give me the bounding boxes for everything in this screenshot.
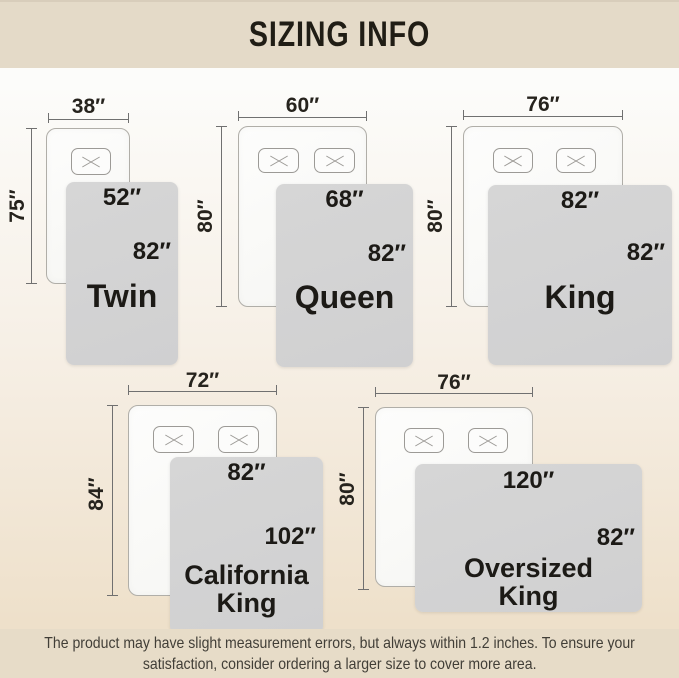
width-dimension-line — [48, 119, 129, 120]
height-dimension-line — [451, 126, 452, 307]
blanket-width-label: 68″ — [276, 186, 413, 214]
width-dimension-line — [128, 391, 277, 392]
pillow-icon — [493, 148, 533, 173]
blanket-height-label: 82″ — [133, 238, 171, 266]
mattress-width-label: 72″ — [128, 369, 277, 393]
blanket-height-label: 82″ — [627, 239, 665, 267]
width-dimension-line — [375, 393, 533, 394]
width-dimension-line — [238, 117, 367, 118]
blanket: 68″ 82″ Queen — [276, 184, 413, 367]
pillow-icon — [258, 148, 299, 173]
blanket-width-label: 52″ — [66, 184, 178, 212]
footer-text-line1: The product may have slight measurement … — [44, 634, 635, 654]
pillow-icon — [71, 148, 111, 175]
mattress-height-label: 80″ — [424, 199, 448, 232]
height-dimension-line — [31, 128, 32, 284]
mattress-height-label: 80″ — [194, 199, 218, 232]
sizing-info-page: SIZING INFO 38″ 75″ 52″ 82″ Twin 60″ 80″… — [0, 0, 679, 678]
blanket-height-label: 82″ — [368, 240, 406, 268]
bed-name-label: Queen — [276, 281, 413, 314]
blanket-width-label: 120″ — [415, 467, 642, 495]
pillow-icon — [468, 428, 508, 453]
mattress-height-label: 75″ — [6, 189, 30, 222]
mattress-width-label: 38″ — [48, 95, 129, 119]
page-title: SIZING INFO — [249, 15, 430, 55]
blanket: 120″ 82″ Oversized King — [415, 464, 642, 612]
pillow-icon — [556, 148, 596, 173]
blanket-height-label: 102″ — [264, 523, 316, 551]
mattress-height-label: 80″ — [336, 472, 360, 505]
mattress-height-label: 84″ — [85, 477, 109, 510]
footer-text-line2: satisfaction, consider ordering a larger… — [143, 655, 537, 675]
height-dimension-line — [363, 407, 364, 590]
bed-name-label: Twin — [66, 280, 178, 313]
blanket-width-label: 82″ — [170, 459, 323, 487]
bed-name-label: California King — [170, 561, 323, 617]
blanket: 82″ 102″ California King — [170, 457, 323, 634]
blanket-width-label: 82″ — [488, 187, 672, 215]
pillow-icon — [153, 426, 194, 453]
footer-bar: The product may have slight measurement … — [0, 629, 679, 678]
width-dimension-line — [463, 116, 623, 117]
mattress-width-label: 76″ — [463, 93, 623, 117]
pillow-icon — [314, 148, 355, 173]
bed-name-label: Oversized King — [415, 554, 642, 610]
blanket-height-label: 82″ — [597, 524, 635, 552]
pillow-icon — [404, 428, 444, 453]
header-bar: SIZING INFO — [0, 2, 679, 68]
height-dimension-line — [221, 126, 222, 307]
blanket: 52″ 82″ Twin — [66, 182, 178, 365]
blanket: 82″ 82″ King — [488, 185, 672, 365]
bed-name-label: King — [488, 281, 672, 314]
height-dimension-line — [112, 405, 113, 596]
mattress-width-label: 76″ — [375, 371, 533, 395]
mattress-width-label: 60″ — [238, 94, 367, 118]
pillow-icon — [218, 426, 259, 453]
